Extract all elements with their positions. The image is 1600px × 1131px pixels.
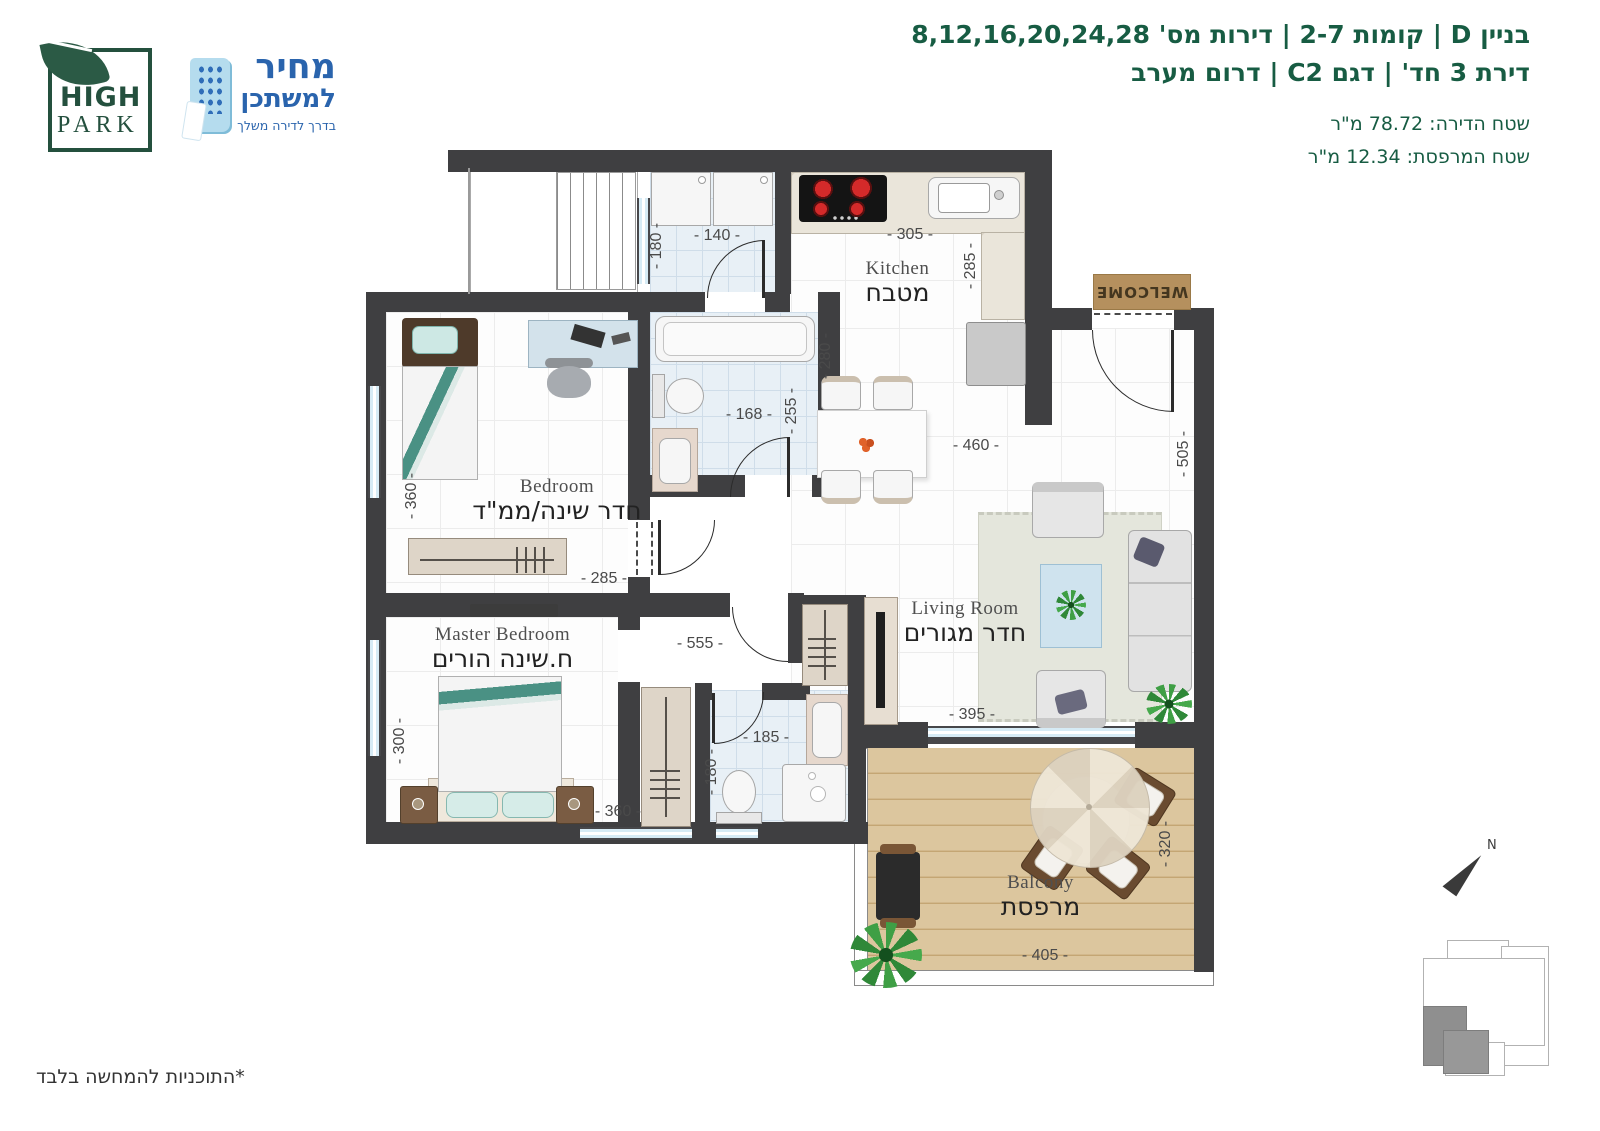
welcome-mat: WELCOME: [1093, 274, 1191, 310]
master-bottom-window: [580, 827, 692, 840]
living-label-he: חדר מגורים: [865, 619, 1065, 647]
bedroom-door-dash2: [651, 522, 653, 575]
nightstand-knob: [412, 798, 424, 810]
dim-bath-depth: - 255 -: [783, 366, 801, 456]
kitchen-sink-basin: [938, 183, 990, 213]
master-pillow: [502, 792, 554, 818]
mechir-logo-word1: מחיר: [232, 50, 336, 85]
dim-bedroom-depth: - 360 -: [403, 451, 421, 541]
kitchen-label-en: Kitchen: [820, 258, 975, 279]
apartment-area-text: שטח הדירה: 78.72 מ"ר: [1330, 113, 1530, 135]
wall-right-outer: [1194, 328, 1214, 724]
toilet-tank: [652, 374, 665, 418]
bbq-grill: [876, 852, 920, 920]
wall-entry-top-right: [1174, 308, 1214, 330]
welcome-mat-text: WELCOME: [1096, 283, 1188, 301]
header-apartment-line: דירת 3 חד' | דגם C2 | דרום מערב: [1131, 58, 1530, 87]
master-pillow: [446, 792, 498, 818]
shower-drain: [810, 786, 826, 802]
wall-balcony-right: [1194, 748, 1214, 972]
bedroom-door-dash1: [636, 522, 638, 575]
dim-bedroom-width: - 285 -: [559, 570, 649, 588]
living-label-en: Living Room: [865, 598, 1065, 619]
wall-top: [448, 150, 1048, 172]
dim-balcony-width: - 405 -: [1000, 947, 1090, 965]
master-window: [368, 640, 381, 756]
fridge: [966, 322, 1026, 386]
balcony-label-en: Balcony: [958, 872, 1123, 893]
entry-door-dash: [1094, 313, 1172, 315]
wall-entry-top-left: [1040, 308, 1092, 330]
shower-window: [716, 827, 758, 840]
armchair: [1032, 482, 1104, 538]
header-building-line: בניין D | קומות 2-7 | דירות מס' 8,12,16,…: [911, 20, 1530, 49]
dim-laundry-depth: - 180 -: [648, 201, 666, 291]
mechir-logo-word2: למשתכן: [232, 86, 336, 112]
toilet-bowl-2: [722, 770, 756, 814]
bedroom-label-en: Bedroom: [448, 476, 666, 497]
bedroom-window: [368, 386, 381, 498]
dim-shower-width: - 185 -: [721, 729, 811, 747]
balcony-label-he: מרפסת: [958, 893, 1123, 921]
dim-master-width: - 360 -: [573, 803, 663, 821]
toilet-tank-2: [716, 812, 762, 824]
fruit-bowl: [858, 437, 876, 453]
entry-wardrobe-hangers-icon: [808, 638, 836, 672]
dining-chair: [873, 470, 913, 504]
dim-kitchen-depth: - 285 -: [962, 221, 980, 311]
master-label-en: Master Bedroom: [405, 624, 600, 645]
dim-bath-width: - 168 -: [704, 406, 794, 424]
kitchen-counter-right: [981, 232, 1025, 320]
desk-chair: [547, 366, 591, 398]
kitchen-label-he: מטבח: [820, 279, 975, 307]
wall-wardrobe-top: [802, 595, 848, 604]
wall-laundry-right: [775, 172, 791, 294]
north-arrow-icon: [1443, 848, 1485, 897]
dim-living-width: - 395 -: [927, 706, 1017, 724]
key-plan-highlighted-unit: [1443, 1030, 1489, 1074]
dim-dining-width: - 460 -: [931, 437, 1021, 455]
balcony-plant-icon: [850, 922, 922, 988]
mechir-logo-tagline: בדרך לדירה משלך: [222, 118, 336, 133]
wardrobe-hangers-icon: [516, 547, 550, 573]
disclaimer-text: *התוכניות להמחשה בלבד: [36, 1066, 245, 1088]
balcony-sliding-window: [928, 726, 1135, 744]
bedroom-label-he: חדר שינה/ממ"ד: [448, 497, 666, 525]
shower-drain-small: [808, 772, 816, 780]
balcony-area-text: שטח המרפסת: 12.34 מ"ר: [1308, 146, 1530, 168]
dim-living-depth: - 505 -: [1175, 409, 1193, 499]
toilet-bowl: [666, 378, 704, 414]
north-label: N: [1487, 838, 1497, 853]
dim-laundry-width: - 140 -: [672, 227, 762, 245]
wall-kitchen-right: [1025, 150, 1052, 425]
dim-shower-depth: - 180 -: [703, 727, 721, 817]
dim-balcony-depth: - 320 -: [1157, 799, 1175, 889]
double-bed: [438, 676, 562, 792]
kitchen-label: Kitchen מטבח: [820, 258, 975, 307]
bedroom-door-swing: [660, 520, 715, 575]
bedroom-label: Bedroom חדר שינה/ממ"ד: [448, 476, 666, 525]
dim-kitchen-width: - 305 -: [865, 226, 955, 244]
wall-shower-top-left: [695, 683, 712, 700]
wall-laundry-bottom: [765, 292, 790, 312]
louver-panel: [556, 172, 636, 290]
wall-bedroom-top: [366, 292, 705, 312]
hall-wardrobe-hangers-icon: [650, 770, 680, 804]
dim-dining-depth: - 280 -: [817, 311, 835, 401]
wall-balcony-top-right: [1135, 722, 1214, 748]
master-bedroom-label: Master Bedroom ח.שינה הורים: [405, 624, 600, 673]
utility-edge-line: [468, 168, 470, 294]
dining-chair: [873, 376, 913, 410]
high-park-logo-word1: HIGH: [60, 82, 141, 113]
master-dresser: [470, 604, 558, 617]
wall-master-right-lower: [618, 682, 640, 822]
living-room-label: Living Room חדר מגורים: [865, 598, 1065, 647]
bathtub-inner: [663, 322, 807, 356]
high-park-logo-word2: PARK: [57, 112, 139, 139]
dryer-machine-knob: [760, 176, 768, 184]
building-base-icon: [181, 101, 207, 142]
key-plan: [1415, 930, 1555, 1080]
dim-master-depth: - 300 -: [391, 696, 409, 786]
washing-machine-knob: [698, 176, 706, 184]
dining-chair: [821, 470, 861, 504]
wall-left-outer: [366, 292, 386, 844]
shower-sink: [812, 702, 842, 758]
dim-hall-width: - 555 -: [655, 635, 745, 653]
kitchen-faucet: [994, 190, 1004, 200]
single-bed-pillow: [412, 326, 458, 354]
cooktop: [799, 175, 887, 222]
wall-master-right-upper: [618, 617, 640, 630]
floor-plant-icon: [1146, 684, 1192, 724]
umbrella-pole: [1086, 804, 1092, 810]
master-label-he: ח.שינה הורים: [405, 645, 600, 673]
balcony-label: Balcony מרפסת: [958, 872, 1123, 921]
bbq-handle-top: [880, 844, 916, 854]
